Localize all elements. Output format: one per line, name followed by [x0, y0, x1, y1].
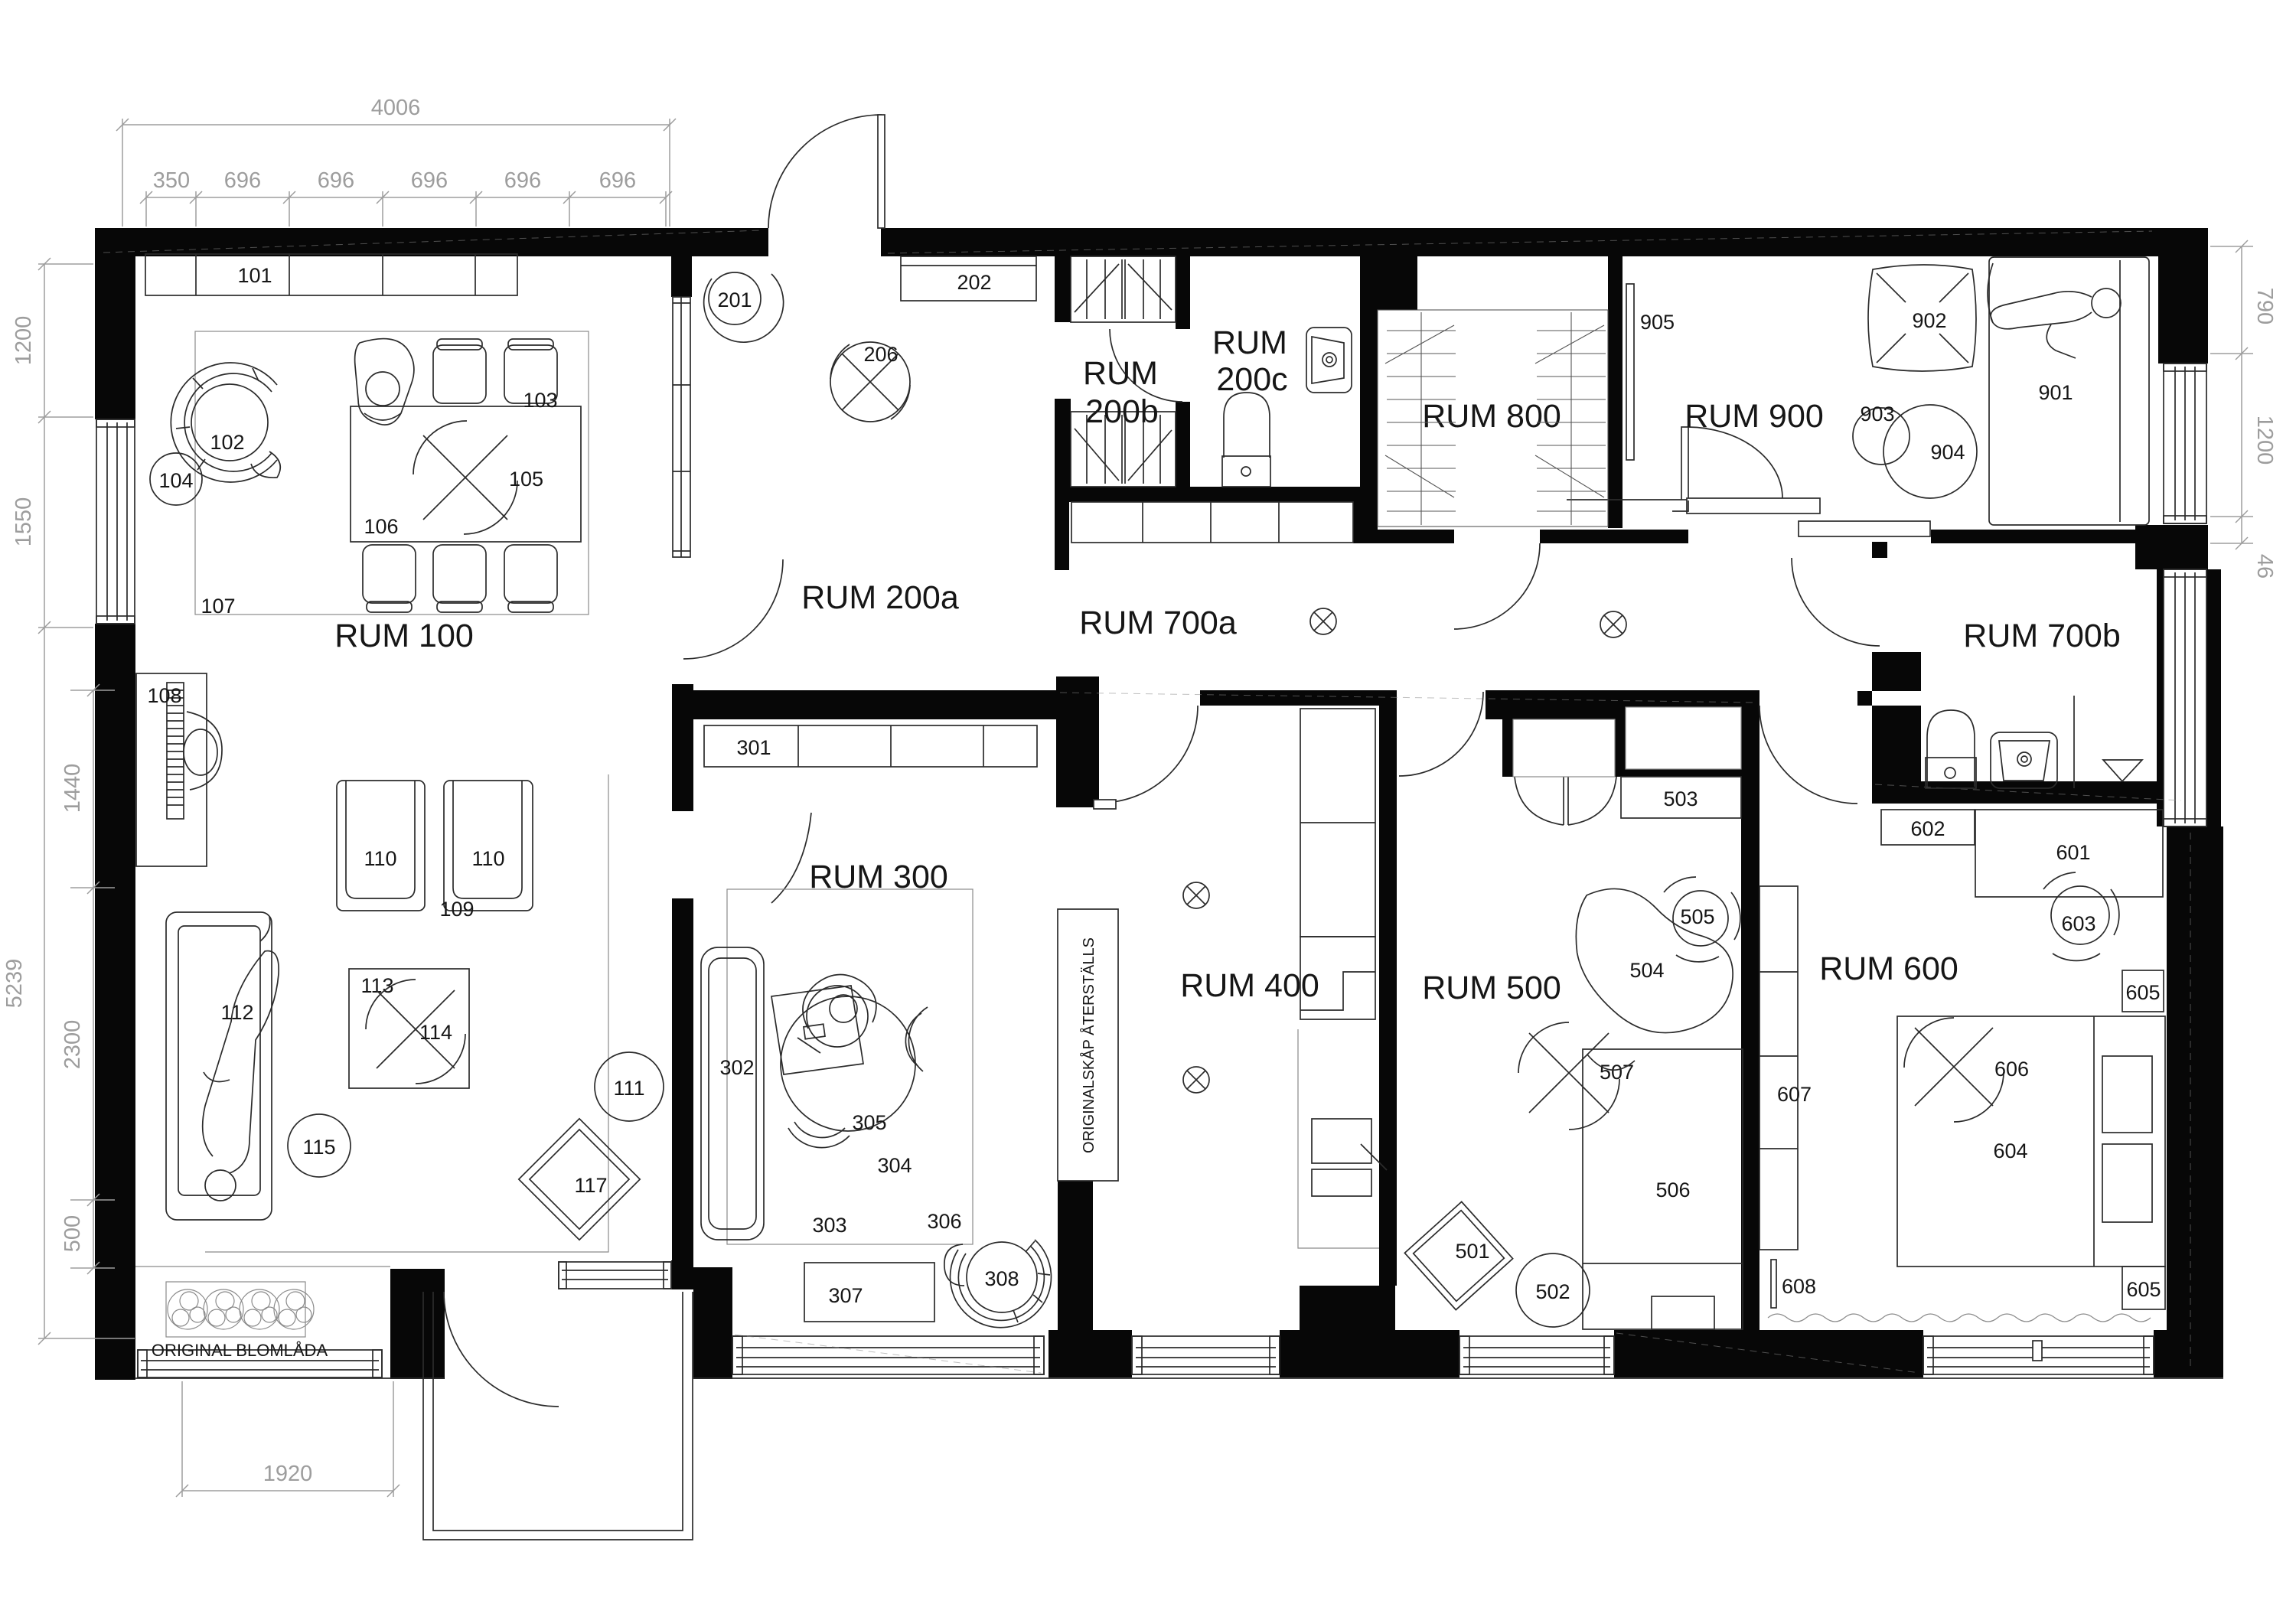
- svg-text:502: 502: [1535, 1280, 1570, 1303]
- svg-text:102: 102: [210, 431, 244, 454]
- svg-text:111: 111: [613, 1077, 644, 1100]
- svg-text:605: 605: [2125, 981, 2160, 1004]
- svg-text:113: 113: [360, 974, 393, 997]
- svg-text:905: 905: [1640, 311, 1675, 334]
- svg-text:605: 605: [2126, 1278, 2161, 1301]
- svg-text:RUM 600: RUM 600: [1819, 950, 1958, 987]
- svg-text:115: 115: [302, 1136, 335, 1159]
- svg-text:501: 501: [1455, 1240, 1489, 1263]
- svg-text:110: 110: [364, 847, 396, 870]
- svg-text:696: 696: [224, 168, 261, 193]
- svg-text:696: 696: [504, 168, 541, 193]
- svg-text:350: 350: [153, 168, 190, 193]
- svg-text:201: 201: [717, 289, 752, 311]
- svg-text:107: 107: [201, 595, 235, 618]
- svg-text:5239: 5239: [2, 959, 27, 1009]
- svg-text:306: 306: [927, 1210, 961, 1233]
- svg-text:114: 114: [419, 1021, 452, 1044]
- svg-text:1200: 1200: [11, 316, 36, 366]
- svg-text:112: 112: [220, 1001, 253, 1024]
- svg-text:103: 103: [523, 389, 557, 412]
- svg-text:606: 606: [1994, 1058, 2029, 1081]
- svg-text:504: 504: [1629, 959, 1664, 982]
- svg-text:RUM 200a: RUM 200a: [801, 579, 959, 616]
- svg-text:RUM 400: RUM 400: [1180, 967, 1319, 1004]
- svg-text:901: 901: [2038, 381, 2073, 404]
- svg-text:500: 500: [60, 1215, 85, 1252]
- svg-text:506: 506: [1655, 1179, 1690, 1201]
- svg-text:301: 301: [736, 736, 771, 759]
- svg-text:603: 603: [2061, 912, 2095, 935]
- svg-text:2300: 2300: [60, 1020, 85, 1070]
- svg-text:101: 101: [237, 264, 272, 287]
- svg-text:200b: 200b: [1085, 393, 1159, 430]
- svg-text:505: 505: [1680, 905, 1714, 928]
- svg-text:602: 602: [1910, 817, 1945, 840]
- svg-text:903: 903: [1860, 403, 1894, 425]
- svg-text:206: 206: [863, 343, 898, 366]
- svg-text:109: 109: [439, 898, 474, 921]
- svg-text:RUM: RUM: [1083, 355, 1158, 392]
- svg-text:108: 108: [147, 684, 181, 707]
- svg-text:105: 105: [509, 468, 543, 491]
- svg-text:305: 305: [852, 1111, 886, 1134]
- svg-text:RUM 300: RUM 300: [809, 859, 948, 895]
- svg-text:1440: 1440: [60, 764, 85, 813]
- svg-text:4006: 4006: [371, 96, 421, 120]
- svg-text:1920: 1920: [263, 1462, 313, 1486]
- svg-text:202: 202: [957, 271, 991, 294]
- svg-text:117: 117: [574, 1174, 607, 1197]
- svg-text:1550: 1550: [11, 497, 36, 547]
- svg-text:790: 790: [2252, 288, 2277, 324]
- svg-text:RUM 800: RUM 800: [1422, 398, 1561, 435]
- svg-text:904: 904: [1930, 441, 1965, 464]
- svg-text:303: 303: [812, 1214, 846, 1237]
- svg-text:ORIGINAL BLOMLÅDA: ORIGINAL BLOMLÅDA: [152, 1341, 328, 1360]
- svg-text:307: 307: [828, 1284, 863, 1307]
- svg-text:503: 503: [1663, 787, 1698, 810]
- svg-text:104: 104: [158, 469, 193, 492]
- svg-text:110: 110: [471, 847, 504, 870]
- svg-text:46: 46: [2252, 554, 2277, 579]
- svg-text:106: 106: [364, 515, 398, 538]
- svg-text:ORIGINALSKÅP ÅTERSTÄLLS: ORIGINALSKÅP ÅTERSTÄLLS: [1080, 937, 1097, 1153]
- svg-text:607: 607: [1777, 1083, 1812, 1106]
- svg-text:601: 601: [2056, 841, 2090, 864]
- svg-text:696: 696: [599, 168, 636, 193]
- svg-text:696: 696: [411, 168, 448, 193]
- svg-text:304: 304: [877, 1154, 912, 1177]
- svg-text:RUM 900: RUM 900: [1684, 398, 1824, 435]
- svg-text:902: 902: [1912, 309, 1946, 332]
- svg-text:308: 308: [984, 1267, 1019, 1290]
- svg-text:696: 696: [318, 168, 354, 193]
- svg-text:RUM 500: RUM 500: [1422, 970, 1561, 1006]
- svg-text:507: 507: [1600, 1061, 1634, 1084]
- svg-text:RUM 700b: RUM 700b: [1963, 618, 2121, 654]
- svg-text:302: 302: [719, 1056, 754, 1079]
- svg-text:RUM: RUM: [1212, 324, 1287, 361]
- svg-text:1200: 1200: [2252, 416, 2277, 465]
- svg-text:RUM 100: RUM 100: [334, 618, 474, 654]
- svg-text:608: 608: [1782, 1275, 1816, 1298]
- svg-text:RUM 700a: RUM 700a: [1079, 605, 1237, 641]
- svg-text:604: 604: [1993, 1139, 2027, 1162]
